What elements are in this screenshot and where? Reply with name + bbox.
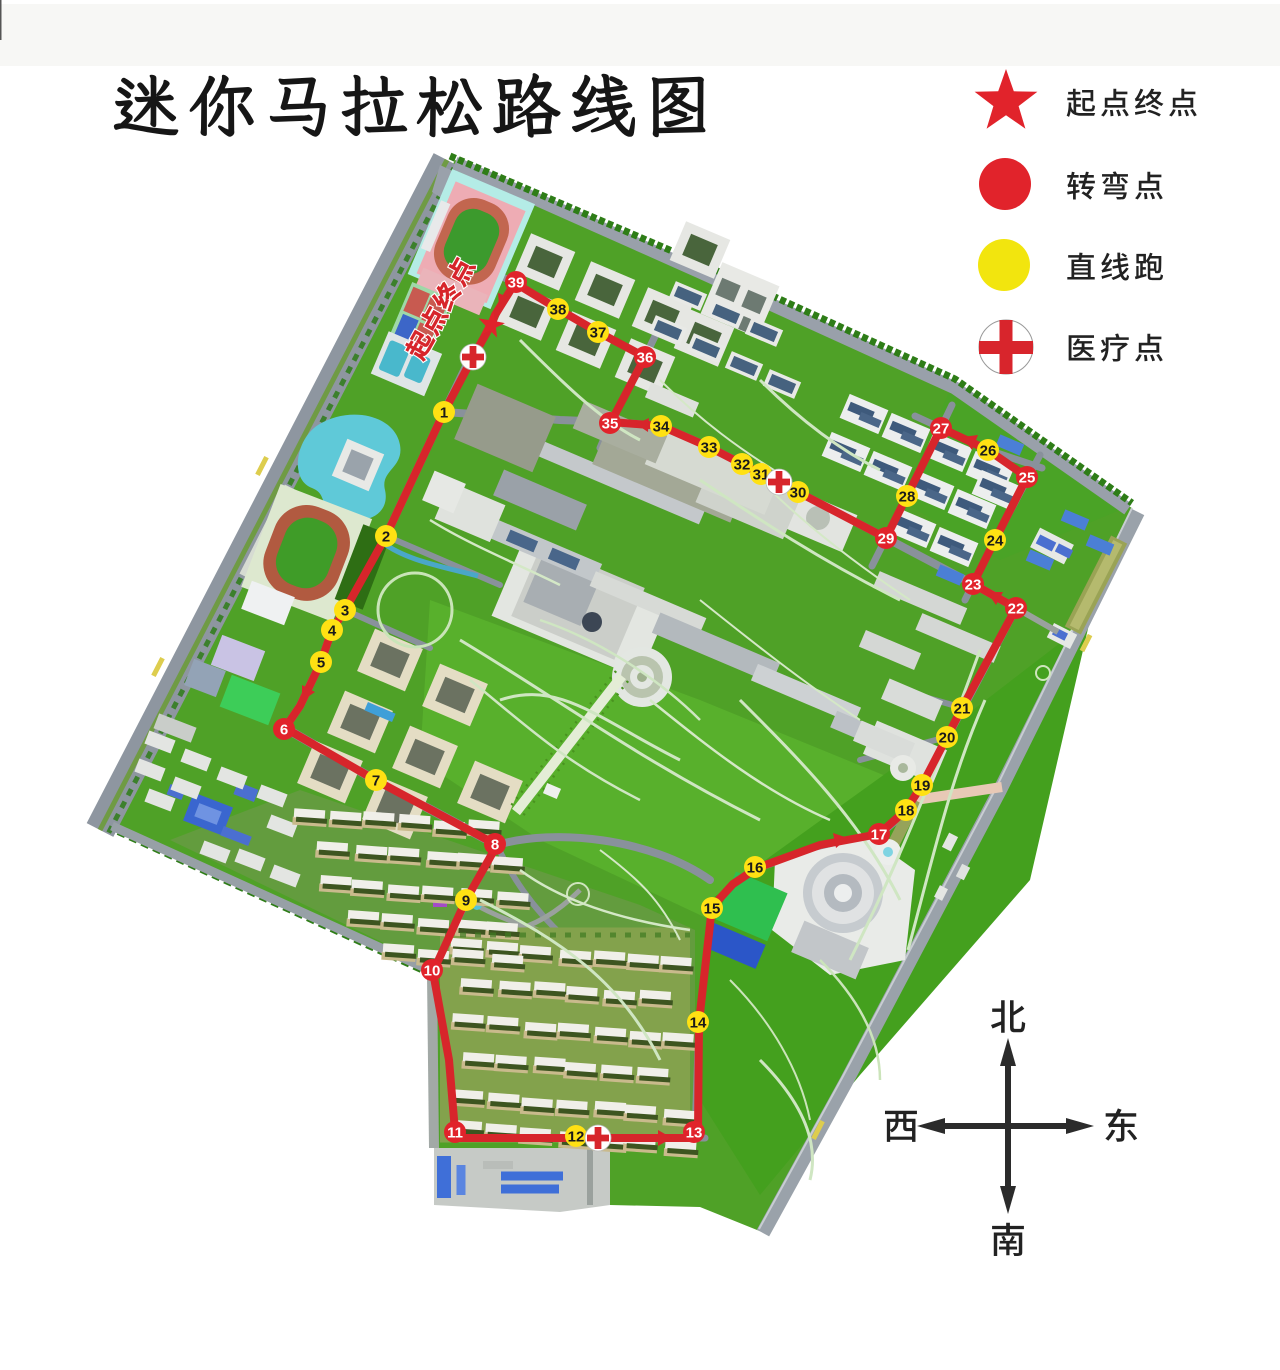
svg-text:7: 7 <box>372 772 380 789</box>
svg-text:14: 14 <box>690 1014 707 1031</box>
svg-text:西: 西 <box>883 1098 919 1150</box>
svg-text:迷你马拉松路线图: 迷你马拉松路线图 <box>112 61 720 150</box>
svg-text:5: 5 <box>317 654 325 671</box>
svg-text:东: 东 <box>1103 1098 1139 1150</box>
svg-text:19: 19 <box>914 777 931 794</box>
svg-text:15: 15 <box>704 900 721 917</box>
svg-text:起点终点: 起点终点 <box>1066 79 1202 123</box>
svg-text:23: 23 <box>965 576 982 593</box>
svg-text:21: 21 <box>954 700 971 717</box>
svg-text:南: 南 <box>990 1212 1026 1264</box>
svg-text:35: 35 <box>602 415 619 432</box>
svg-text:29: 29 <box>878 530 895 547</box>
svg-text:37: 37 <box>590 324 607 341</box>
svg-text:16: 16 <box>747 859 764 876</box>
svg-text:1: 1 <box>440 404 448 421</box>
svg-text:10: 10 <box>424 962 441 979</box>
svg-text:32: 32 <box>734 456 751 473</box>
svg-text:33: 33 <box>701 439 718 456</box>
svg-text:27: 27 <box>933 420 950 437</box>
svg-text:直线跑: 直线跑 <box>1066 243 1168 287</box>
svg-text:北: 北 <box>990 989 1026 1041</box>
svg-text:34: 34 <box>653 418 670 435</box>
svg-text:转弯点: 转弯点 <box>1066 162 1168 206</box>
svg-text:36: 36 <box>637 349 654 366</box>
svg-text:4: 4 <box>328 622 337 639</box>
svg-text:28: 28 <box>899 488 916 505</box>
svg-text:22: 22 <box>1008 600 1025 617</box>
svg-text:11: 11 <box>447 1124 463 1141</box>
svg-text:医疗点: 医疗点 <box>1066 324 1168 368</box>
svg-text:13: 13 <box>686 1124 703 1141</box>
svg-text:12: 12 <box>568 1128 585 1145</box>
svg-text:17: 17 <box>871 826 888 843</box>
svg-text:30: 30 <box>790 484 807 501</box>
svg-text:8: 8 <box>491 836 499 853</box>
svg-text:24: 24 <box>987 532 1004 549</box>
svg-text:6: 6 <box>280 721 288 738</box>
svg-text:25: 25 <box>1019 469 1036 486</box>
svg-text:39: 39 <box>508 274 525 291</box>
svg-text:2: 2 <box>382 528 390 545</box>
svg-text:20: 20 <box>939 729 956 746</box>
svg-text:26: 26 <box>980 442 997 459</box>
svg-text:38: 38 <box>550 301 567 318</box>
svg-text:3: 3 <box>341 602 349 619</box>
svg-text:9: 9 <box>462 892 470 909</box>
svg-text:18: 18 <box>898 802 915 819</box>
